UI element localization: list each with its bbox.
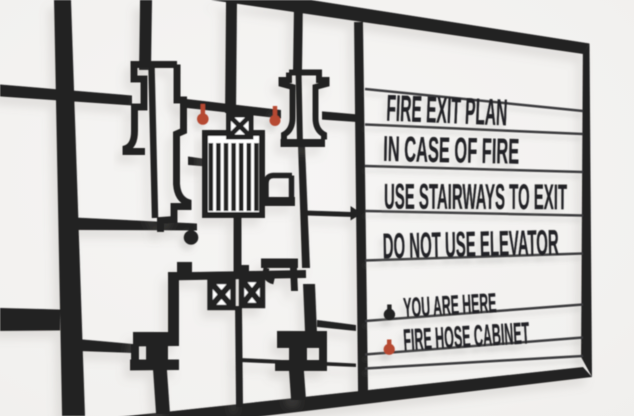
svg-text:DO NOT USE ELEVATOR: DO NOT USE ELEVATOR (382, 223, 559, 267)
svg-text:YOU ARE HERE: YOU ARE HERE (403, 287, 498, 323)
svg-text:USE STAIRWAYS TO EXIT: USE STAIRWAYS TO EXIT (384, 177, 567, 218)
svg-text:FIRE EXIT PLAN: FIRE EXIT PLAN (386, 88, 509, 134)
svg-text:IN CASE OF FIRE: IN CASE OF FIRE (383, 129, 520, 172)
svg-text:FIRE HOSE CABINET: FIRE HOSE CABINET (402, 316, 530, 357)
